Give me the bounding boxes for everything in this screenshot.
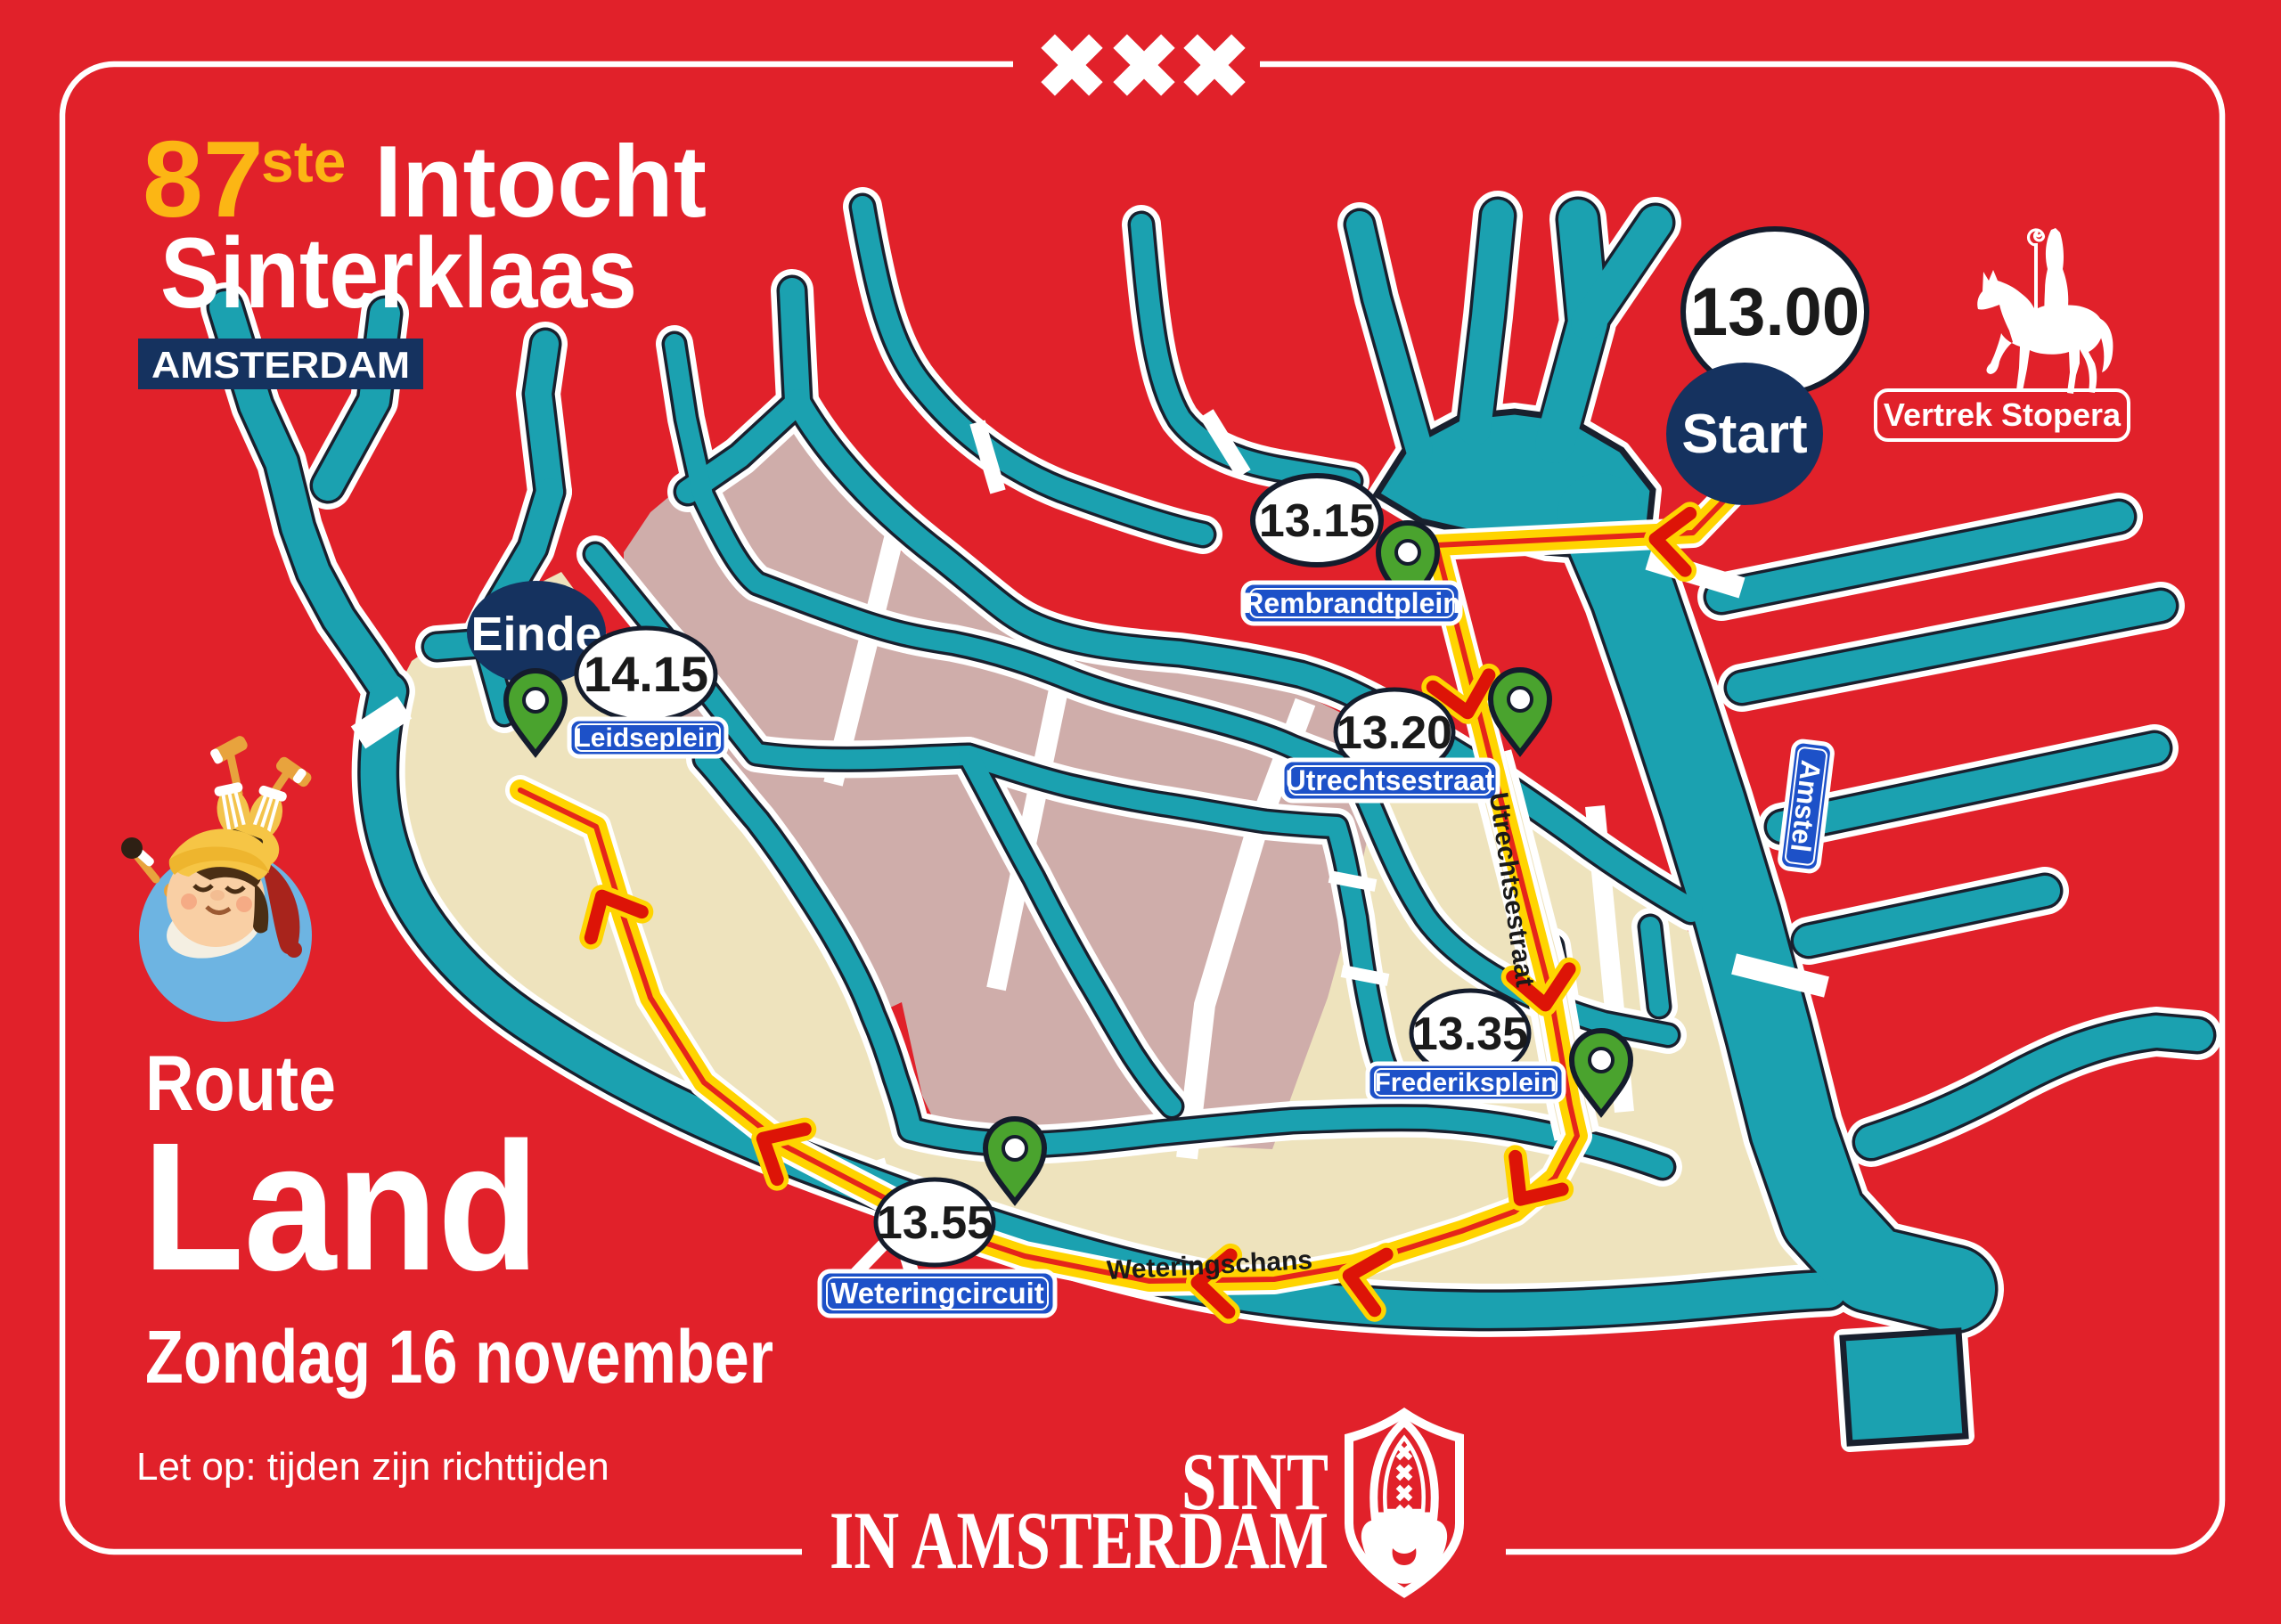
svg-text:Leidseplein: Leidseplein bbox=[574, 723, 721, 753]
svg-text:13.20: 13.20 bbox=[1337, 707, 1452, 759]
svg-text:13.55: 13.55 bbox=[877, 1197, 993, 1249]
svg-text:Zondag 16 november: Zondag 16 november bbox=[145, 1315, 773, 1399]
svg-text:13.15: 13.15 bbox=[1259, 495, 1375, 547]
svg-text:14.15: 14.15 bbox=[584, 646, 708, 702]
svg-text:Let op: tijden zijn richttijde: Let op: tijden zijn richttijden bbox=[136, 1445, 609, 1489]
svg-text:13.00: 13.00 bbox=[1690, 274, 1860, 350]
svg-text:IN AMSTERDAM: IN AMSTERDAM bbox=[830, 1495, 1329, 1586]
svg-text:Frederiksplein: Frederiksplein bbox=[1374, 1068, 1557, 1098]
svg-text:AMSTERDAM: AMSTERDAM bbox=[151, 344, 410, 386]
svg-text:13.35: 13.35 bbox=[1412, 1008, 1528, 1060]
svg-text:Sinterklaas: Sinterklaas bbox=[160, 217, 637, 329]
svg-text:Vertrek Stopera: Vertrek Stopera bbox=[1884, 396, 2122, 433]
svg-text:Utrechtsestraat: Utrechtsestraat bbox=[1286, 764, 1495, 796]
svg-text:Land: Land bbox=[143, 1105, 539, 1309]
svg-text:Weteringcircuit: Weteringcircuit bbox=[830, 1277, 1044, 1310]
svg-text:Rembrandtplein: Rembrandtplein bbox=[1243, 587, 1460, 619]
svg-text:Start: Start bbox=[1681, 404, 1807, 465]
svg-text:ste: ste bbox=[261, 128, 346, 194]
